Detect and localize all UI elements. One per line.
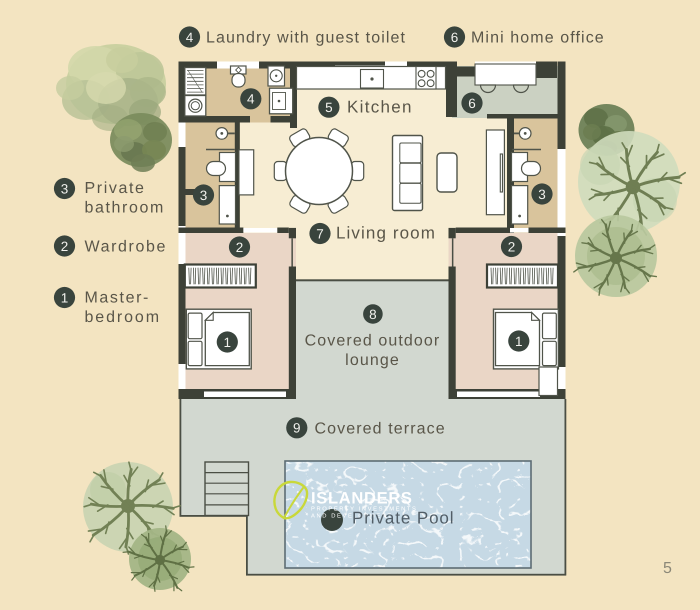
svg-text:Kitchen: Kitchen: [347, 98, 413, 117]
svg-text:Laundry with guest toilet: Laundry with guest toilet: [206, 30, 406, 47]
svg-text:Master-: Master-: [85, 290, 150, 307]
svg-text:ISLANDERS: ISLANDERS: [311, 490, 413, 508]
svg-text:2: 2: [236, 240, 244, 255]
svg-text:3: 3: [61, 181, 69, 196]
svg-text:bedroom: bedroom: [85, 309, 161, 326]
svg-text:6: 6: [468, 96, 476, 111]
svg-text:2: 2: [508, 239, 516, 254]
svg-text:6: 6: [451, 30, 459, 45]
svg-text:Living room: Living room: [336, 224, 436, 243]
svg-text:8: 8: [369, 307, 377, 322]
svg-text:Private Pool: Private Pool: [352, 509, 454, 528]
svg-text:1: 1: [224, 335, 232, 350]
svg-text:9: 9: [293, 421, 301, 436]
svg-text:5: 5: [325, 100, 333, 115]
svg-text:1: 1: [61, 290, 69, 305]
svg-text:2: 2: [61, 239, 69, 254]
svg-text:4: 4: [186, 30, 194, 45]
svg-text:3: 3: [538, 187, 546, 202]
svg-text:Covered outdoor: Covered outdoor: [305, 333, 441, 350]
svg-text:4: 4: [247, 92, 255, 107]
svg-text:bathroom: bathroom: [85, 200, 165, 217]
svg-text:Covered terrace: Covered terrace: [315, 421, 446, 438]
svg-text:lounge: lounge: [345, 352, 400, 369]
svg-text:Private: Private: [85, 180, 146, 197]
svg-text:5: 5: [663, 560, 673, 577]
svg-text:Wardrobe: Wardrobe: [85, 239, 167, 256]
svg-text:3: 3: [200, 188, 208, 203]
svg-text:1: 1: [515, 334, 523, 349]
svg-text:7: 7: [316, 226, 324, 241]
svg-text:Mini home office: Mini home office: [471, 30, 605, 47]
